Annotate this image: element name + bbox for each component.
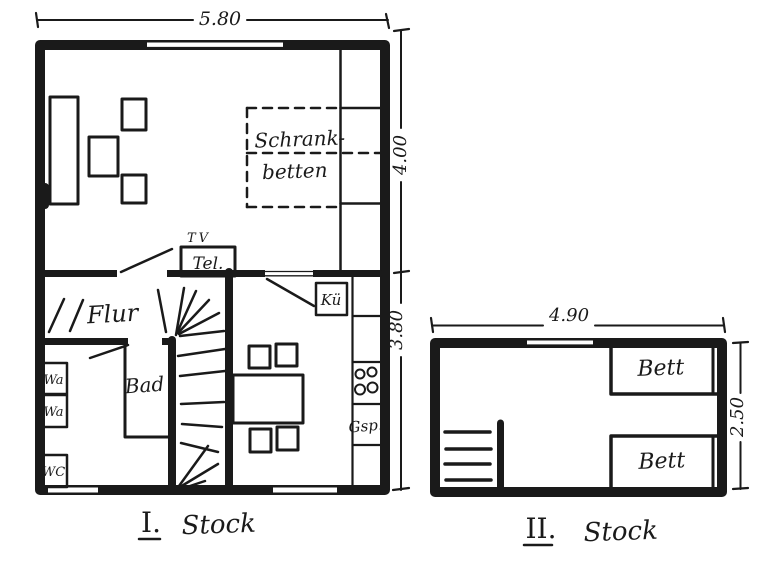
- dim-tick: [733, 488, 748, 489]
- stairs-floor1: [176, 288, 225, 489]
- floor2-caption: II. Stock: [524, 512, 658, 548]
- flur-entry-mark-1: [49, 299, 64, 332]
- floor1-plan: 5.80 4.00 3.80 Schrank- betten TV Tel. F…: [36, 8, 411, 541]
- armchair-bottom: [122, 175, 146, 203]
- label-bett-top: Bett: [636, 355, 685, 382]
- chair: [249, 346, 270, 368]
- left-wall-hinge-mark: [40, 183, 49, 209]
- armchair-top: [122, 99, 146, 130]
- floor1-caption-word: Stock: [181, 509, 256, 542]
- label-bett-bottom: Bett: [637, 448, 686, 475]
- chair: [276, 344, 297, 366]
- chair: [250, 429, 271, 452]
- floor1-caption: I. Stock: [139, 506, 256, 541]
- dim-tick: [733, 342, 748, 343]
- label-bad: Bad: [123, 372, 165, 399]
- label-kueche: Kü: [320, 291, 342, 309]
- stair-tread: [178, 349, 225, 356]
- stair-tread: [181, 443, 218, 452]
- flur-entry-mark-2: [70, 300, 83, 331]
- floor2-plan: 4.90 2.50 Bett Bett II. Stock: [431, 305, 748, 548]
- floor1-bottom-window-right: [273, 488, 337, 493]
- floor2-caption-numeral: II.: [525, 512, 556, 545]
- label-schrankbetten-2: betten: [262, 158, 328, 184]
- burner: [368, 383, 378, 393]
- stair-tread: [182, 424, 222, 427]
- floor2-dimensions: 4.90 2.50: [431, 305, 748, 489]
- dim-label-top: 5.80: [199, 8, 241, 30]
- living-furniture: [50, 97, 146, 204]
- floorplan-sketch-page: 5.80 4.00 3.80 Schrank- betten TV Tel. F…: [0, 0, 772, 565]
- dim-label-right: 2.50: [727, 397, 748, 438]
- label-gsp: Gsp.: [348, 416, 384, 437]
- living-door-swing: [121, 249, 172, 272]
- stair-tread: [180, 331, 224, 336]
- table-living: [89, 137, 118, 176]
- closet-column: [341, 50, 381, 270]
- floor2-top-window: [527, 341, 593, 346]
- dim-tick: [36, 13, 38, 27]
- label-schrankbetten-1: Schrank-: [254, 125, 346, 152]
- dim-label-right-upper: 4.00: [390, 135, 411, 176]
- dining-set: [233, 344, 303, 452]
- label-wa-bottom: Wa: [44, 405, 64, 420]
- burner: [368, 368, 377, 377]
- dining-table: [233, 375, 303, 423]
- dim-tick: [393, 488, 409, 490]
- floor2-caption-word: Stock: [583, 516, 658, 549]
- stair-tread: [180, 371, 225, 376]
- sofa: [50, 97, 78, 204]
- dim-tick: [431, 318, 433, 332]
- stair-entry-mark: [158, 290, 166, 332]
- dim-label-right-lower: 3.80: [386, 310, 407, 350]
- dim-tick: [386, 14, 389, 28]
- door-gap-bad: [128, 338, 162, 345]
- dim-tick: [723, 318, 725, 332]
- label-wc: WC: [42, 465, 65, 480]
- floor1-caption-numeral: I.: [141, 506, 161, 539]
- label-flur: Flur: [85, 299, 140, 330]
- floor1-top-window: [147, 43, 283, 48]
- label-tel: Tel.: [193, 254, 224, 274]
- burner: [355, 385, 365, 395]
- bad-door-swing: [90, 345, 128, 358]
- stove-burners: [355, 368, 378, 395]
- dim-label-top: 4.90: [548, 305, 589, 326]
- burner: [356, 370, 365, 379]
- dim-tick: [394, 29, 409, 31]
- stair-tread: [181, 402, 224, 404]
- floorplan-drawing: 5.80 4.00 3.80 Schrank- betten TV Tel. F…: [0, 0, 772, 565]
- chair: [277, 427, 298, 450]
- label-wa-top: Wa: [44, 373, 64, 388]
- stair-tread: [178, 300, 209, 333]
- label-tv: TV: [187, 231, 211, 246]
- kitchen-door-swing: [267, 279, 314, 306]
- stairs-floor2: [445, 432, 491, 480]
- door-gap-kitchen: [265, 269, 313, 278]
